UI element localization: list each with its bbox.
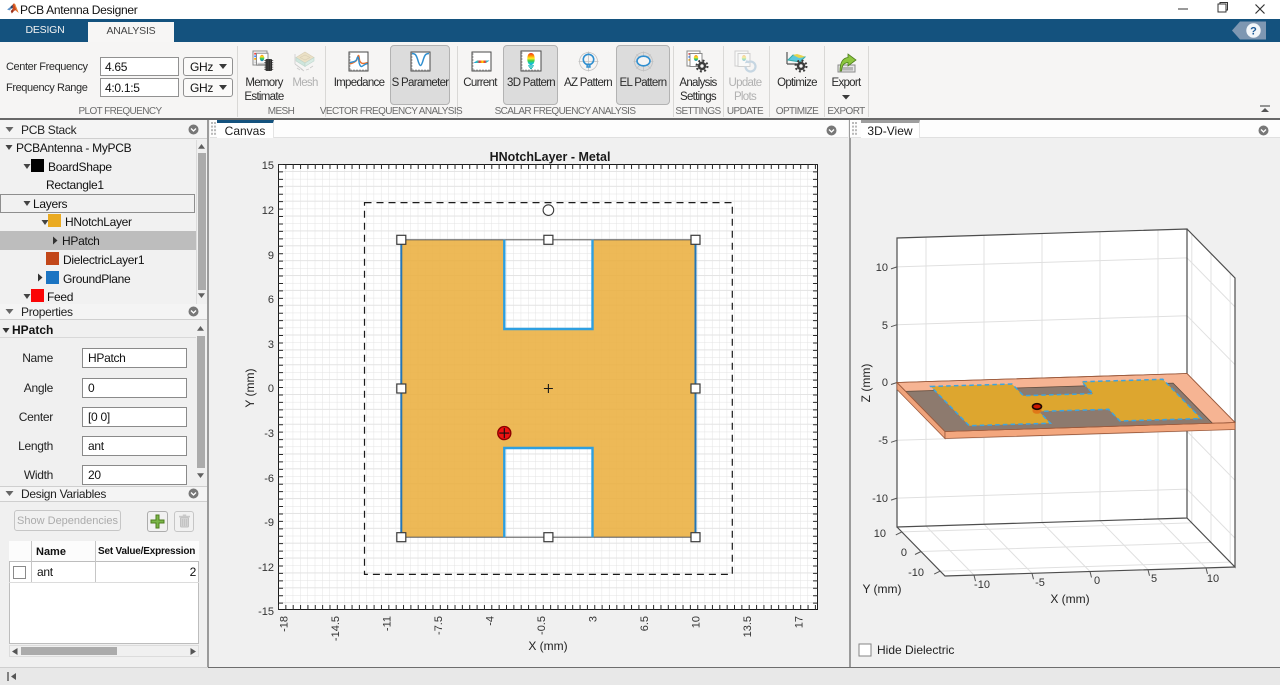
svg-text:-5: -5 xyxy=(1035,577,1045,589)
svg-text:HNotchLayer - Metal: HNotchLayer - Metal xyxy=(490,150,611,164)
svg-text:-3: -3 xyxy=(264,428,274,440)
svg-text:6.5: 6.5 xyxy=(639,616,651,631)
svg-text:0: 0 xyxy=(1094,575,1100,587)
svg-text:-18: -18 xyxy=(279,616,291,632)
svg-text:-5: -5 xyxy=(878,435,888,447)
svg-text:X (mm): X (mm) xyxy=(528,639,567,653)
svg-text:-10: -10 xyxy=(872,493,888,505)
svg-text:-10: -10 xyxy=(974,579,990,591)
svg-text:?: ? xyxy=(1250,26,1257,38)
svg-text:0: 0 xyxy=(901,547,907,559)
svg-text:-0.5: -0.5 xyxy=(536,616,548,635)
svg-text:10: 10 xyxy=(876,262,888,274)
svg-text:10: 10 xyxy=(1207,573,1219,585)
svg-text:6: 6 xyxy=(268,294,274,306)
svg-text:-14.5: -14.5 xyxy=(330,616,342,641)
svg-text:-4: -4 xyxy=(485,616,497,626)
svg-text:9: 9 xyxy=(268,250,274,262)
svg-text:5: 5 xyxy=(1151,573,1157,585)
svg-text:X (mm): X (mm) xyxy=(1050,592,1089,606)
svg-text:-11: -11 xyxy=(382,616,394,631)
svg-text:-6: -6 xyxy=(264,473,274,485)
svg-text:-15: -15 xyxy=(258,606,274,618)
svg-text:5: 5 xyxy=(882,320,888,332)
svg-text:17: 17 xyxy=(794,616,806,628)
svg-text:10: 10 xyxy=(691,616,703,628)
svg-text:3: 3 xyxy=(268,339,274,351)
svg-text:-12: -12 xyxy=(258,562,274,574)
svg-text:13.5: 13.5 xyxy=(742,616,754,637)
svg-text:12: 12 xyxy=(262,205,274,217)
svg-text:Y (mm): Y (mm) xyxy=(243,368,257,407)
svg-text:-10: -10 xyxy=(908,567,924,579)
svg-text:10: 10 xyxy=(874,528,886,540)
svg-text:-9: -9 xyxy=(264,517,274,529)
svg-text:15: 15 xyxy=(262,160,274,172)
svg-text:3: 3 xyxy=(588,616,600,622)
svg-text:0: 0 xyxy=(268,383,274,395)
svg-text:Hide Dielectric: Hide Dielectric xyxy=(877,643,954,657)
svg-text:0: 0 xyxy=(882,377,888,389)
svg-text:Z (mm): Z (mm) xyxy=(859,364,873,403)
svg-text:Y (mm): Y (mm) xyxy=(862,582,901,596)
svg-text:-7.5: -7.5 xyxy=(433,616,445,635)
